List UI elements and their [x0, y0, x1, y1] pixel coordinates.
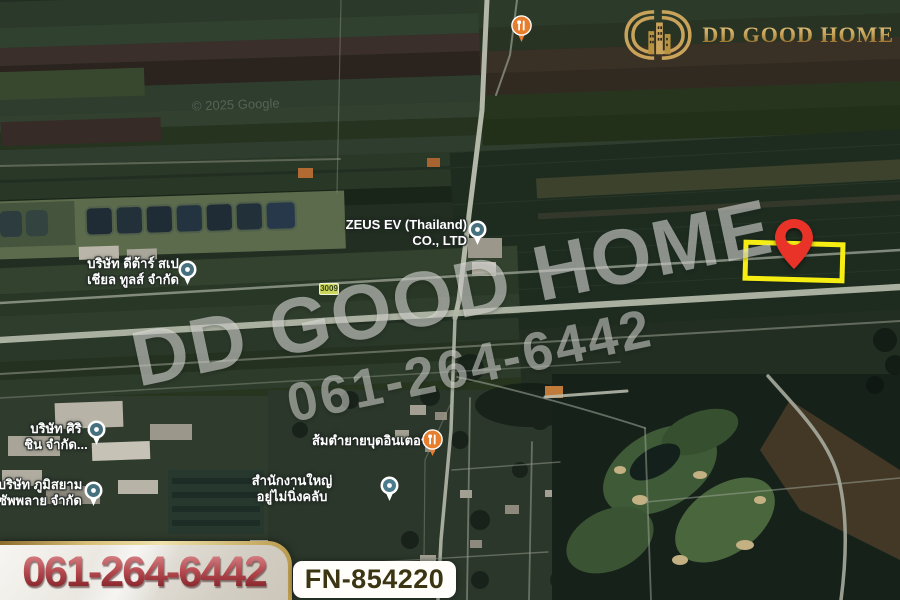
map-label-somtam-restaurant: ส้มตำยายบุดอินเตอร์: [312, 433, 424, 449]
listing-image: ZEUS EV (Thailand) CO., LTD บริษัท ดีต้า…: [0, 0, 900, 600]
brand-emblem-icon: [622, 8, 694, 62]
map-label-zeus-ev: ZEUS EV (Thailand) CO., LTD: [346, 217, 467, 248]
phone-panel: 061-264-6442: [0, 541, 292, 600]
route-badge-3009: 3009: [319, 283, 339, 295]
phone-number: 061-264-6442: [22, 548, 266, 597]
place-pin-icon: [86, 420, 107, 447]
map-label-head-office: สำนักงานใหญ่ อยู่ไม่นิ่งคลับ: [245, 473, 339, 504]
place-pin-icon: [467, 220, 488, 247]
restaurant-pin-icon: [421, 429, 444, 459]
label-line: สำนักงานใหญ่: [245, 473, 339, 489]
emblem-buildings: [649, 22, 671, 54]
label-line: CO., LTD: [346, 233, 467, 249]
listing-code-badge: FN-854220: [293, 561, 456, 598]
label-line: ส้มตำยายบุดอินเตอร์: [312, 433, 424, 449]
satellite-map: [0, 0, 900, 600]
listing-code: FN-854220: [305, 564, 445, 595]
restaurant-pin-icon: [510, 15, 533, 45]
phone-panel-inner: 061-264-6442: [0, 545, 288, 600]
place-pin-icon: [379, 476, 400, 503]
red-location-pin-icon: [771, 218, 817, 270]
place-pin-icon: [177, 260, 198, 287]
brand-logo: DD GOOD HOME: [622, 8, 894, 62]
label-line: ZEUS EV (Thailand): [346, 217, 467, 233]
place-pin-icon: [83, 481, 104, 508]
brand-name: DD GOOD HOME: [702, 22, 894, 48]
label-line: อยู่ไม่นิ่งคลับ: [245, 489, 339, 505]
map-attribution: © 2025 Google: [192, 95, 280, 113]
